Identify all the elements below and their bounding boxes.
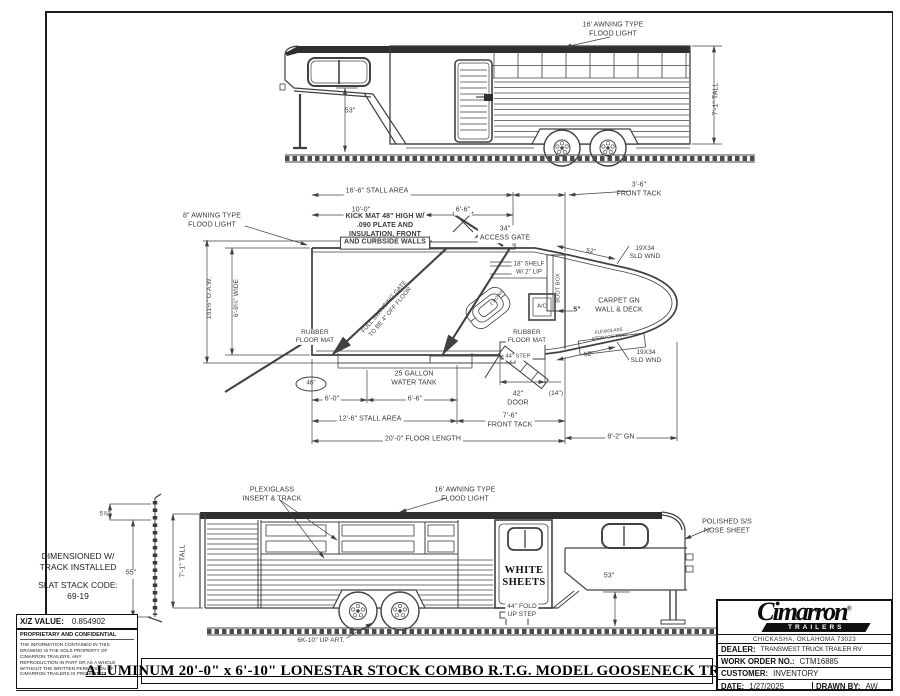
label-shelf: 18" SHELF W/ 2" LIP [512,262,547,277]
label-rubber-mat-front: RUBBER FLOOR MAT [506,329,548,345]
side-view-streetside-drawing [95,484,767,659]
door-swing [485,354,500,378]
dim-tall-bottom-view: 7'-1" TALL [180,545,189,578]
registered-mark: ® [847,604,852,612]
front-jack [293,94,307,148]
label-rubber-mat-rear: RUBBER FLOOR MAT [294,329,336,345]
dim-6-0: 6'-0" [323,396,341,405]
customer-label: CUSTOMER: [721,669,768,678]
work-order-row: WORK ORDER NO.: CTM16885 [718,656,891,668]
label-awning-flood-light-bottom: 16' AWNING TYPE FLOOD LIGHT [435,486,496,504]
proprietary-box: PROPRIETARY AND CONFIDENTIAL THE INFORMA… [16,629,138,689]
drawn-by-value: AW [865,682,877,691]
brand-logo: Cimarron® TRAILERS [718,601,891,635]
sheet-border-right [892,11,894,691]
side-view-curbside-drawing [278,34,760,176]
rear-gate-slats [207,524,258,554]
drawing-sheet: 16' AWNING TYPE FLOOD LIGHT 7'-1" TALL 5… [0,0,900,696]
drawn-by-cell: DRAWN BY: AW [812,682,891,691]
label-axle: 6K-10" UP ART. [295,637,346,645]
xz-value: 0.854902 [72,617,105,626]
rear-frame [200,514,205,608]
dim-gn-length: 8'-2" GN [605,434,636,443]
dim-floor-length: 20'-0" FLOOR LENGTH [383,436,463,445]
dim-14: (14") [549,390,563,398]
label-access-gate: 34" ACCESS GATE [478,225,532,243]
xz-label: X/Z VALUE: [20,617,64,626]
dim-oaw: 101½" O.A.W. [206,277,214,319]
vent-rows [492,53,689,78]
dim-gn-clearance-top-view: 53" [345,108,356,117]
dim-front-tack-bot: 7'-6" FRONT TACK [486,412,535,430]
label-ac-unit: A/C [537,304,546,311]
dimensions [336,37,722,152]
dim-6-6-bot: 6'-6" [406,396,424,405]
roof-band [298,46,690,53]
ground [285,155,755,162]
label-sld-wnd-bot: 19X34 SLD WND [631,349,662,365]
date-value: 1/27/2025 [749,682,784,691]
sheet-border-left [45,11,47,615]
label-boot-box: BOOT BOX [556,273,563,302]
date-cell: DATE: 1/27/2025 [718,682,812,691]
slat-stack-gauge [148,494,162,622]
label-white-sheets: WHITE SHEETS [502,565,545,589]
brand-banner: TRAILERS [761,623,870,632]
dim-wide: 6'-9¼" WIDE [233,279,241,317]
date-label: DATE: [721,682,744,691]
dim-52-top: 52" [586,247,597,256]
dealer-value: TRANSWEST TRUCK TRAILER RV [761,646,862,653]
label-plexiglass-insert: PLEXIGLASS INSERT & TRACK [243,486,302,504]
roof-band [200,512,662,519]
brand-address: CHICKASHA, OKLAHOMA 73023 [718,635,891,644]
dim-6-6-top: 6'-6" [454,207,472,216]
door-latch [484,94,493,101]
title-block: Cimarron® TRAILERS CHICKASHA, OKLAHOMA 7… [716,599,893,691]
wheel [339,592,377,630]
proprietary-title: PROPRIETARY AND CONFIDENTIAL [20,632,134,640]
drawing-title: ALUMINUM 20'-0" x 6'-10" LONESTAR STOCK … [86,663,769,680]
dimensions [203,191,677,444]
label-water-tank: 25 GALLON WATER TANK [389,370,438,388]
work-order-label: WORK ORDER NO.: [721,657,795,666]
label-awning-flood-light-top: 16' AWNING TYPE FLOOD LIGHT [583,21,644,39]
nose-cap [662,512,685,530]
gooseneck [553,524,693,624]
drawn-by-label: DRAWN BY: [816,682,860,691]
drawing-title-bar: ALUMINUM 20'-0" x 6'-10" LONESTAR STOCK … [141,658,713,684]
dealer-label: DEALER: [721,645,756,654]
dim-front-tack-top: 3'-6" FRONT TACK [617,181,662,199]
details [296,255,646,391]
note-kick-mat-walls: AND CURBSIDE WALLS [340,237,430,250]
dim-gn-clearance-bottom-view: 53" [604,573,615,582]
customer-value: INVENTORY [773,669,818,678]
customer-row: CUSTOMER: INVENTORY [718,668,891,680]
dim-stall-area-bot: 12'-6" STALL AREA [337,416,404,425]
label-sld-wnd-top: 19X34 SLD WND [630,245,661,261]
label-carpet-gn: CARPET GN WALL & DECK [595,297,643,315]
label-step-44: 44" STEP [504,354,533,361]
rear-jack [670,590,676,620]
ground [207,628,755,635]
sheet-border-top [45,11,893,13]
dim-52-bot: 52" [584,350,595,359]
work-order-value: CTM16885 [800,657,839,666]
dim-46: 46" [306,380,315,388]
date-drawn-row: DATE: 1/27/2025 DRAWN BY: AW [718,680,891,692]
note-kick-mat: KICK MAT 48" HIGH W/ .090 PLATE AND INSU… [344,213,427,239]
note-slat-stack-code: SLAT STACK CODE: 69-19 [16,580,140,603]
label-fold-up-step: 44" FOLD UP STEP [505,603,538,619]
label-nose-sheet: POLISHED S/S NOSE SHEET [702,518,752,536]
dim-5in: 5" [573,307,580,316]
dim-tall-top-view: 7'-1" TALL [713,83,722,116]
wheel [381,592,419,630]
dim-slat-5-78: 5⅞" [100,511,111,519]
label-awning-flood-light-plan: 8" AWNING TYPE FLOOD LIGHT [183,212,241,230]
xz-value-box: X/Z VALUE: 0.854902 [16,614,138,629]
note-dimensioned: DIMENSIONED W/ TRACK INSTALLED [16,551,140,574]
gooseneck-window [602,524,648,548]
dealer-row: DEALER: TRANSWEST TRUCK TRAILER RV [718,644,891,656]
dim-door-42: 42" DOOR [505,390,530,408]
saddle-rack [462,283,514,332]
dim-stall-area: 16'-6" STALL AREA [344,188,411,197]
brand-sub-text: TRAILERS [788,624,845,631]
